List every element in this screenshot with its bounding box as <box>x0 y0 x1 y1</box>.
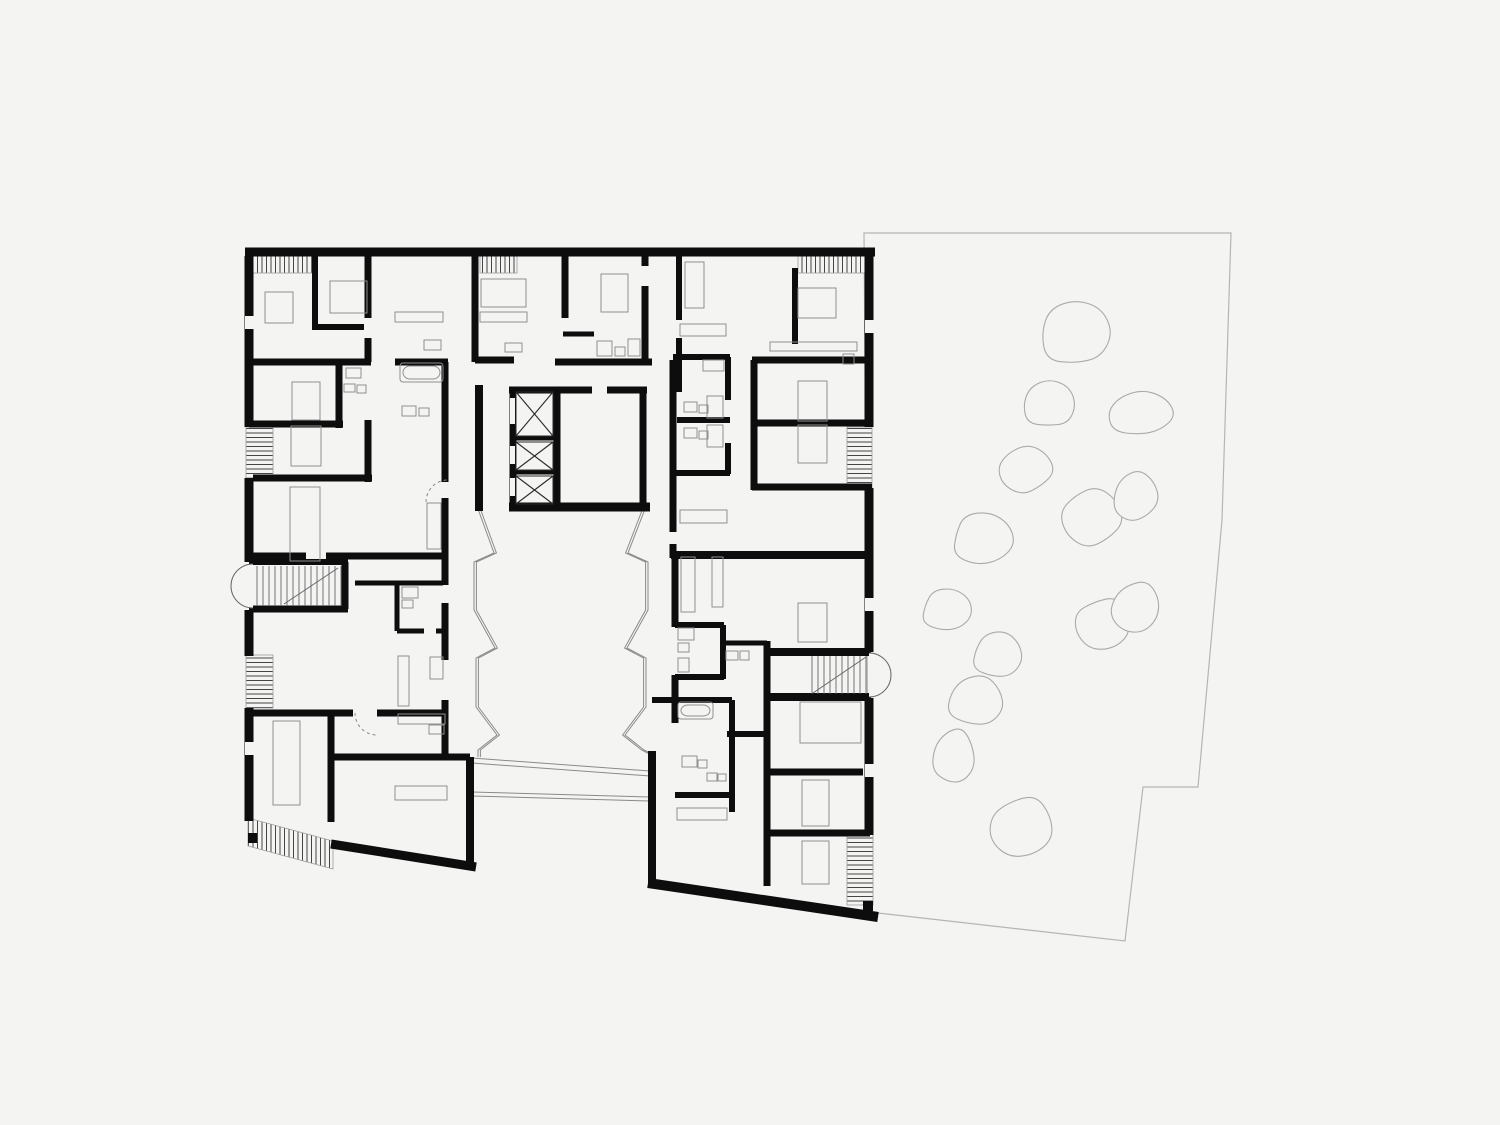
tree <box>1024 381 1074 425</box>
window-gap <box>865 598 874 611</box>
balcony-hatch <box>847 833 873 905</box>
plan-background <box>0 0 1500 1125</box>
balcony-hatch <box>246 655 273 708</box>
window-gap <box>865 320 874 333</box>
window-gap <box>245 316 254 329</box>
window-gap <box>364 318 372 338</box>
window-gap <box>510 398 515 424</box>
tree <box>1043 302 1110 363</box>
wall-corner-block <box>863 901 873 911</box>
wall-corner-block <box>248 833 257 843</box>
window-gap <box>510 478 515 496</box>
window-gap <box>865 764 874 777</box>
window-gap <box>245 742 254 755</box>
tree <box>923 589 971 630</box>
window-gap <box>510 446 515 464</box>
floor-plan-svg <box>0 0 1500 1125</box>
balcony-hatch <box>246 427 273 478</box>
balcony-hatch <box>847 427 872 488</box>
window-gap <box>641 266 649 286</box>
floor-plan-page <box>0 0 1500 1125</box>
